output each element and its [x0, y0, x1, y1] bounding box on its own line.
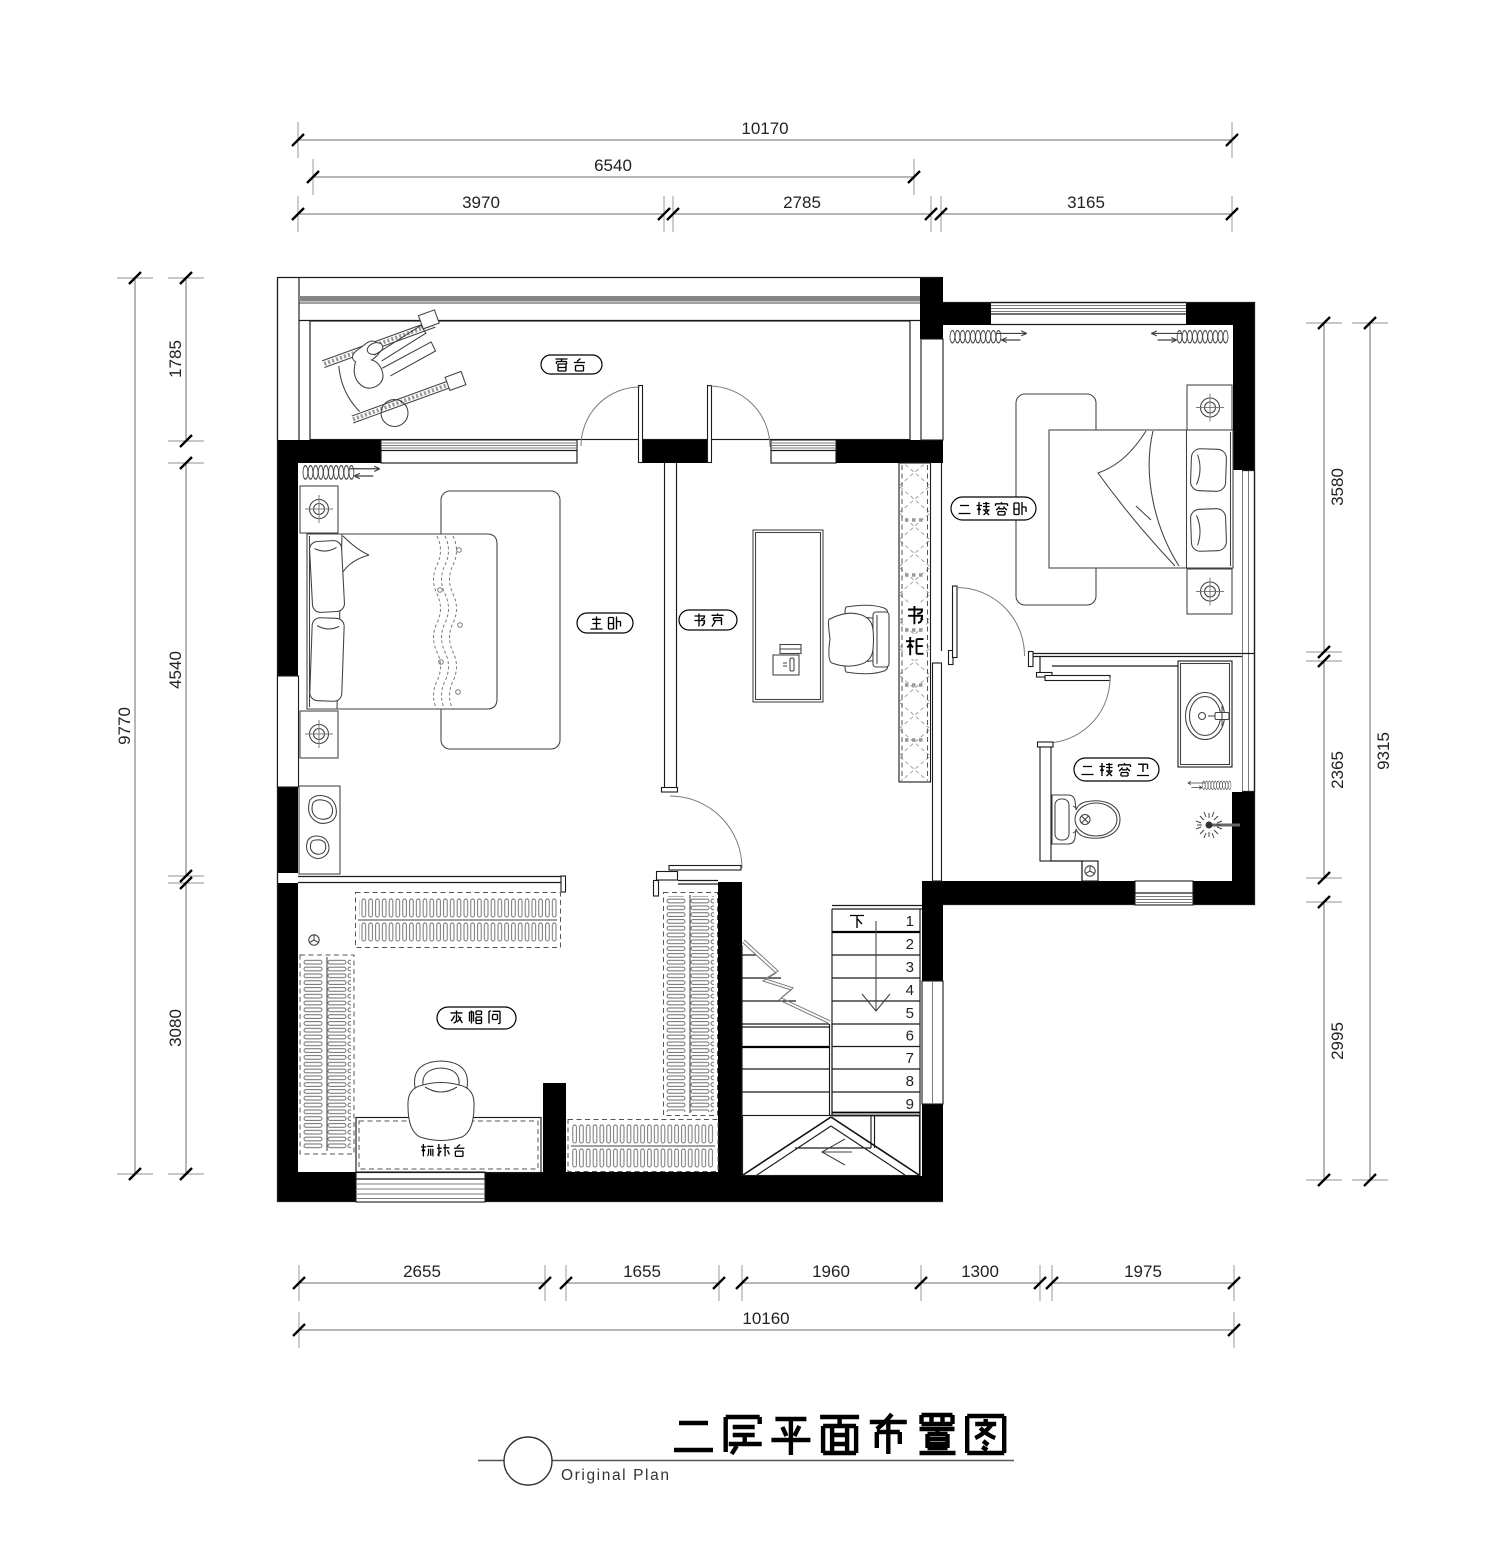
svg-text:9: 9	[906, 1096, 914, 1113]
svg-text:3970: 3970	[462, 193, 500, 212]
svg-text:10160: 10160	[742, 1309, 789, 1328]
svg-text:3: 3	[906, 959, 914, 976]
svg-text:2365: 2365	[1328, 751, 1347, 789]
svg-text:1300: 1300	[961, 1262, 999, 1281]
svg-text:9770: 9770	[115, 707, 134, 745]
svg-text:1655: 1655	[623, 1262, 661, 1281]
svg-text:1975: 1975	[1124, 1262, 1162, 1281]
svg-text:7: 7	[906, 1050, 914, 1067]
svg-text:1: 1	[906, 913, 914, 930]
svg-text:2995: 2995	[1328, 1022, 1347, 1060]
svg-text:5: 5	[906, 1005, 914, 1022]
svg-text:3580: 3580	[1328, 468, 1347, 506]
svg-text:4: 4	[906, 982, 914, 999]
svg-text:4540: 4540	[166, 651, 185, 689]
svg-text:3080: 3080	[166, 1009, 185, 1047]
svg-text:2655: 2655	[403, 1262, 441, 1281]
svg-text:6: 6	[906, 1028, 914, 1045]
svg-text:1785: 1785	[166, 340, 185, 378]
svg-text:8: 8	[906, 1073, 914, 1090]
svg-text:Original Plan: Original Plan	[561, 1467, 671, 1484]
svg-text:2: 2	[906, 936, 914, 953]
svg-text:10170: 10170	[741, 119, 788, 138]
svg-text:6540: 6540	[594, 156, 632, 175]
svg-text:2785: 2785	[783, 193, 821, 212]
svg-text:3165: 3165	[1067, 193, 1105, 212]
svg-text:1960: 1960	[812, 1262, 850, 1281]
svg-text:9315: 9315	[1374, 732, 1393, 770]
